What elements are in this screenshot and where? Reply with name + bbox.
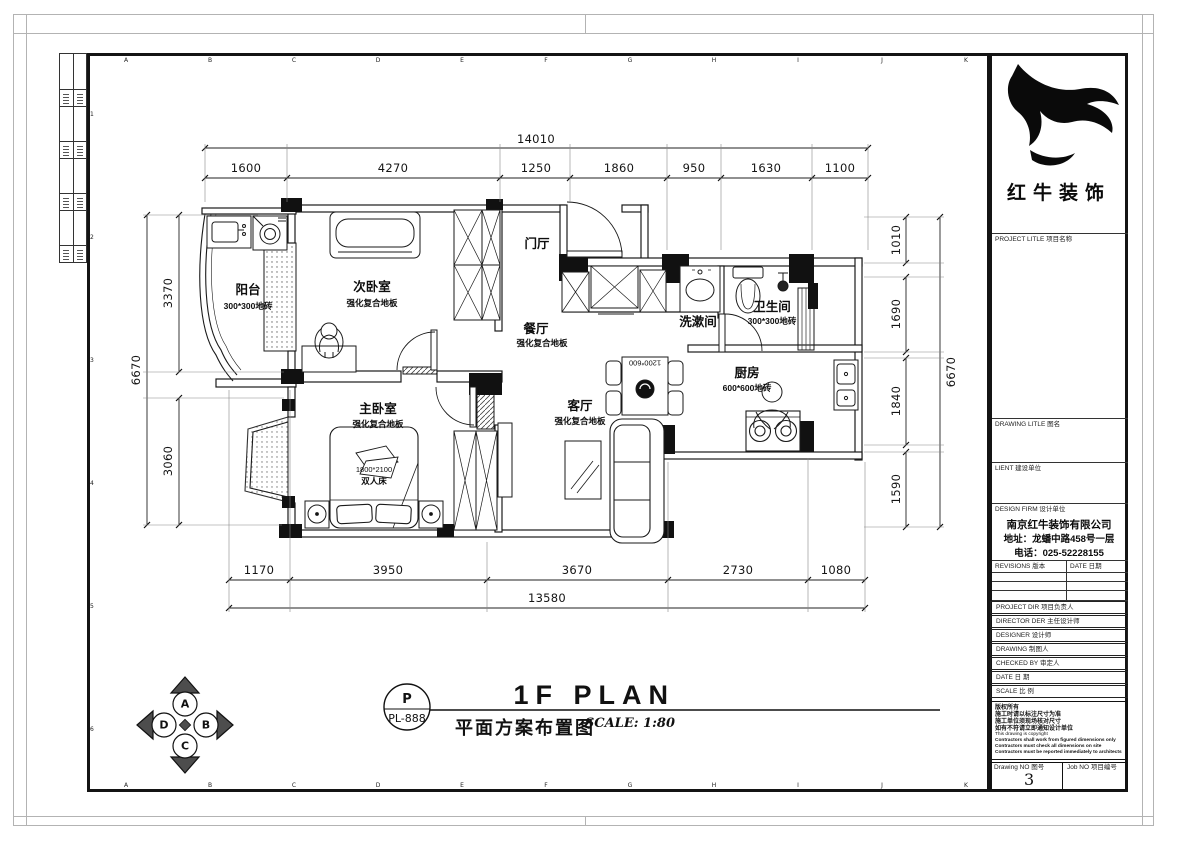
tb-row-label: DATE 日 期 bbox=[996, 675, 1029, 682]
dim-top-total: 14010 bbox=[515, 132, 557, 146]
tb-job-no-label: Job NO 项目编号 bbox=[1067, 765, 1117, 772]
tb-line bbox=[992, 462, 1128, 463]
tb-line bbox=[992, 572, 1128, 573]
tb-drawing-title-label: DRAWING LITLE 图名 bbox=[995, 422, 1060, 429]
washing-machine bbox=[253, 216, 287, 250]
compass-letter-b: B bbox=[202, 719, 210, 732]
tb-row-label: PROJECT DIR 项目负责人 bbox=[996, 605, 1074, 612]
tb-copyright-line: 施工单位须现场核对尺寸 bbox=[995, 719, 1061, 725]
tb-line bbox=[992, 503, 1128, 504]
compass-icon bbox=[137, 677, 233, 773]
drawing-title-cn: 平面方案布置图 bbox=[455, 714, 595, 740]
dim-left-total: 6670 bbox=[129, 353, 143, 387]
tb-date-col-label: DATE 日期 bbox=[1070, 564, 1102, 571]
dim-top: 1100 bbox=[823, 161, 857, 175]
drawing-sheet: ABCDEFGHIJK ABCDEFGHIJK 123456 bbox=[0, 0, 1200, 848]
ref-bubble-top-label: P bbox=[402, 692, 412, 707]
room-label-balcony: 阳台 bbox=[235, 284, 260, 297]
stove bbox=[746, 411, 800, 451]
sofa bbox=[610, 419, 664, 543]
dim-top: 4270 bbox=[376, 161, 410, 175]
tb-row-label: DRAWING 制图人 bbox=[996, 647, 1048, 654]
room-label-living: 客厅 bbox=[567, 400, 592, 413]
dim-top: 1250 bbox=[519, 161, 553, 175]
dim-right: 1010 bbox=[889, 223, 903, 257]
tb-line bbox=[992, 581, 1128, 582]
tb-row-checked-by: CHECKED BY 审定人 bbox=[990, 657, 1128, 670]
bay-window bbox=[245, 417, 288, 502]
room-label-dining: 餐厅 bbox=[523, 323, 548, 336]
tb-line bbox=[992, 560, 1128, 561]
desk-and-person bbox=[302, 323, 356, 372]
tb-row-date: DATE 日 期 bbox=[990, 671, 1128, 684]
tb-firm-address: 地址：龙蟠中路458号一层 bbox=[990, 531, 1128, 545]
tb-drawing-no-divider bbox=[1062, 762, 1063, 790]
dim-top: 1860 bbox=[602, 161, 636, 175]
dim-left: 3370 bbox=[161, 276, 175, 310]
ref-bubble-bottom-label: PL-888 bbox=[388, 712, 426, 725]
room-label-bathroom: 卫生间 bbox=[753, 301, 791, 314]
tb-row-label: CHECKED BY 审定人 bbox=[996, 661, 1059, 668]
tb-design-firm-label: DESIGN FIRM 设计单位 bbox=[995, 507, 1065, 514]
hall-cabinets bbox=[562, 266, 666, 314]
dim-bottom: 3670 bbox=[560, 563, 594, 577]
room-sub-bathroom: 300*300地砖 bbox=[748, 317, 797, 326]
tb-firm-phone: 电话：025-52228155 bbox=[990, 545, 1128, 559]
dim-right: 1590 bbox=[889, 472, 903, 506]
room-label-foyer: 门厅 bbox=[524, 238, 549, 251]
tb-copyright-line: Contractors must be reported immediately… bbox=[995, 751, 1122, 756]
daybed bbox=[330, 212, 420, 258]
company-name: 红牛装饰 bbox=[990, 178, 1128, 205]
wardrobe-master bbox=[454, 431, 497, 530]
drawing-title-en: 1F PLAN bbox=[513, 680, 675, 711]
hatched-walls bbox=[264, 243, 814, 429]
tb-row-label: DIRECTOR DER 主任设计师 bbox=[996, 619, 1080, 626]
washroom-basin bbox=[680, 266, 720, 312]
dim-left: 3060 bbox=[161, 444, 175, 478]
wardrobe-second-bedroom bbox=[454, 210, 500, 320]
dimension-ticks bbox=[144, 145, 943, 611]
room-sub-balcony: 300*300地砖 bbox=[224, 302, 273, 311]
room-label-second-bedroom: 次卧室 bbox=[353, 281, 391, 294]
tb-drawing-no-value: 3 bbox=[1024, 770, 1034, 789]
tb-client-label: LIENT 建设单位 bbox=[995, 466, 1041, 473]
room-sub-second-bedroom: 强化复合地板 bbox=[346, 299, 397, 308]
tb-project-title-label: PROJECT LITLE 项目名称 bbox=[995, 237, 1072, 244]
dim-right: 1690 bbox=[889, 297, 903, 331]
tb-row-label: DESIGNER 设计师 bbox=[996, 633, 1051, 640]
compass-letter-a: A bbox=[181, 698, 190, 711]
dim-bottom: 2730 bbox=[721, 563, 755, 577]
tb-firm-name: 南京红牛装饰有限公司 bbox=[990, 517, 1128, 532]
tb-row-designer: DESIGNER 设计师 bbox=[990, 629, 1128, 642]
room-label-master-bedroom: 主卧室 bbox=[359, 403, 397, 416]
dim-top: 1600 bbox=[229, 161, 263, 175]
table-size-label: 1200*600 bbox=[629, 359, 661, 367]
compass-letter-d: D bbox=[159, 719, 168, 732]
tb-row-drawing-by: DRAWING 制图人 bbox=[990, 643, 1128, 656]
bed-size-label: 1800*2100 bbox=[356, 466, 392, 474]
tb-line bbox=[992, 233, 1128, 234]
tb-col-divider bbox=[1066, 560, 1067, 600]
tb-revisions-label: REVISIONS 版本 bbox=[995, 564, 1045, 571]
dim-top: 950 bbox=[681, 161, 708, 175]
tb-row-scale: SCALE 比 例 bbox=[990, 685, 1128, 698]
room-sub-dining: 强化复合地板 bbox=[516, 339, 567, 348]
room-sub-master-bedroom: 强化复合地板 bbox=[352, 420, 403, 429]
redniu-logo-icon bbox=[1008, 64, 1119, 165]
tb-row-director: DIRECTOR DER 主任设计师 bbox=[990, 615, 1128, 628]
tb-copyright-line: 版权所有 bbox=[995, 705, 1019, 711]
balcony-sink bbox=[207, 216, 251, 248]
room-sub-living: 强化复合地板 bbox=[554, 417, 605, 426]
dim-bottom: 1080 bbox=[819, 563, 853, 577]
dim-bottom: 1170 bbox=[242, 563, 276, 577]
rug-mirror bbox=[565, 441, 601, 499]
tb-row-project-dir: PROJECT DIR 项目负责人 bbox=[990, 601, 1128, 614]
tb-drawing-no-label: Drawing NO 图号 bbox=[994, 765, 1044, 772]
tb-row-label: SCALE 比 例 bbox=[996, 689, 1034, 696]
dim-top: 1630 bbox=[749, 161, 783, 175]
dim-right-total: 6670 bbox=[944, 355, 958, 389]
dim-right: 1840 bbox=[889, 384, 903, 418]
room-sub-kitchen: 600*600地砖 bbox=[723, 384, 772, 393]
dim-bottom-total: 13580 bbox=[526, 591, 568, 605]
tb-line bbox=[992, 590, 1128, 591]
drawing-scale: SCALE: 1:80 bbox=[585, 716, 675, 731]
tb-copyright-line: 施工时请以标注尺寸为准 bbox=[995, 712, 1061, 718]
tb-line bbox=[992, 418, 1128, 419]
kitchen-sink bbox=[834, 360, 858, 410]
room-label-washroom: 洗漱间 bbox=[679, 316, 717, 329]
room-label-kitchen: 厨房 bbox=[734, 367, 759, 380]
shower-head bbox=[778, 273, 788, 291]
dim-bottom: 3950 bbox=[371, 563, 405, 577]
compass-letter-c: C bbox=[181, 740, 189, 753]
bed-type-label: 双人床 bbox=[361, 477, 387, 486]
